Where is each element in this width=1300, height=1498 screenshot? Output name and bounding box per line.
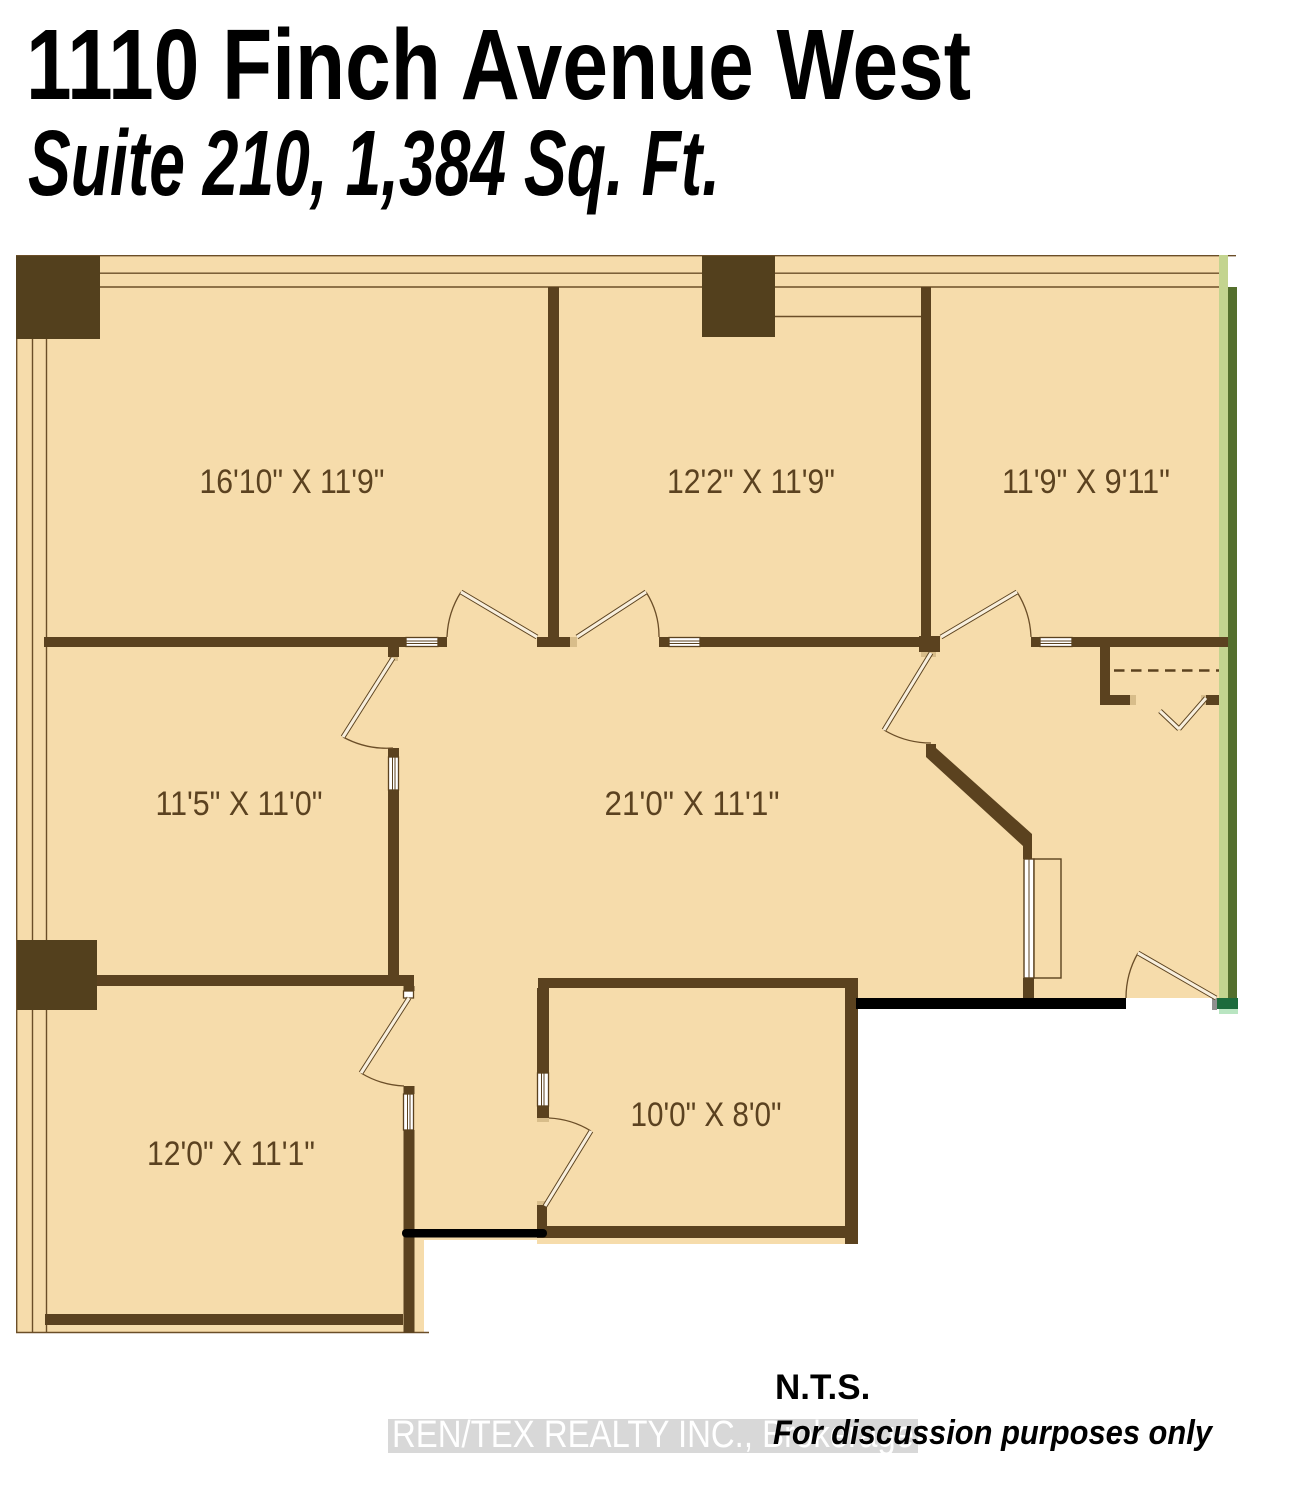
svg-text:11'5" X 11'0": 11'5" X 11'0" — [156, 785, 323, 823]
svg-text:11'9" X 9'11": 11'9" X 9'11" — [1002, 463, 1170, 501]
svg-text:For discussion purposes only: For discussion purposes only — [773, 1414, 1214, 1452]
svg-text:16'10" X 11'9": 16'10" X 11'9" — [200, 463, 385, 501]
svg-text:10'0" X 8'0": 10'0" X 8'0" — [631, 1096, 782, 1134]
svg-text:12'0" X 11'1": 12'0" X 11'1" — [147, 1135, 315, 1173]
svg-text:N.T.S.: N.T.S. — [775, 1368, 870, 1407]
svg-text:21'0" X 11'1": 21'0" X 11'1" — [605, 785, 780, 823]
svg-text:Suite 210, 1,384 Sq. Ft.: Suite 210, 1,384 Sq. Ft. — [28, 111, 720, 215]
svg-text:12'2" X 11'9": 12'2" X 11'9" — [667, 463, 835, 501]
svg-text:1110 Finch Avenue West: 1110 Finch Avenue West — [26, 9, 971, 121]
